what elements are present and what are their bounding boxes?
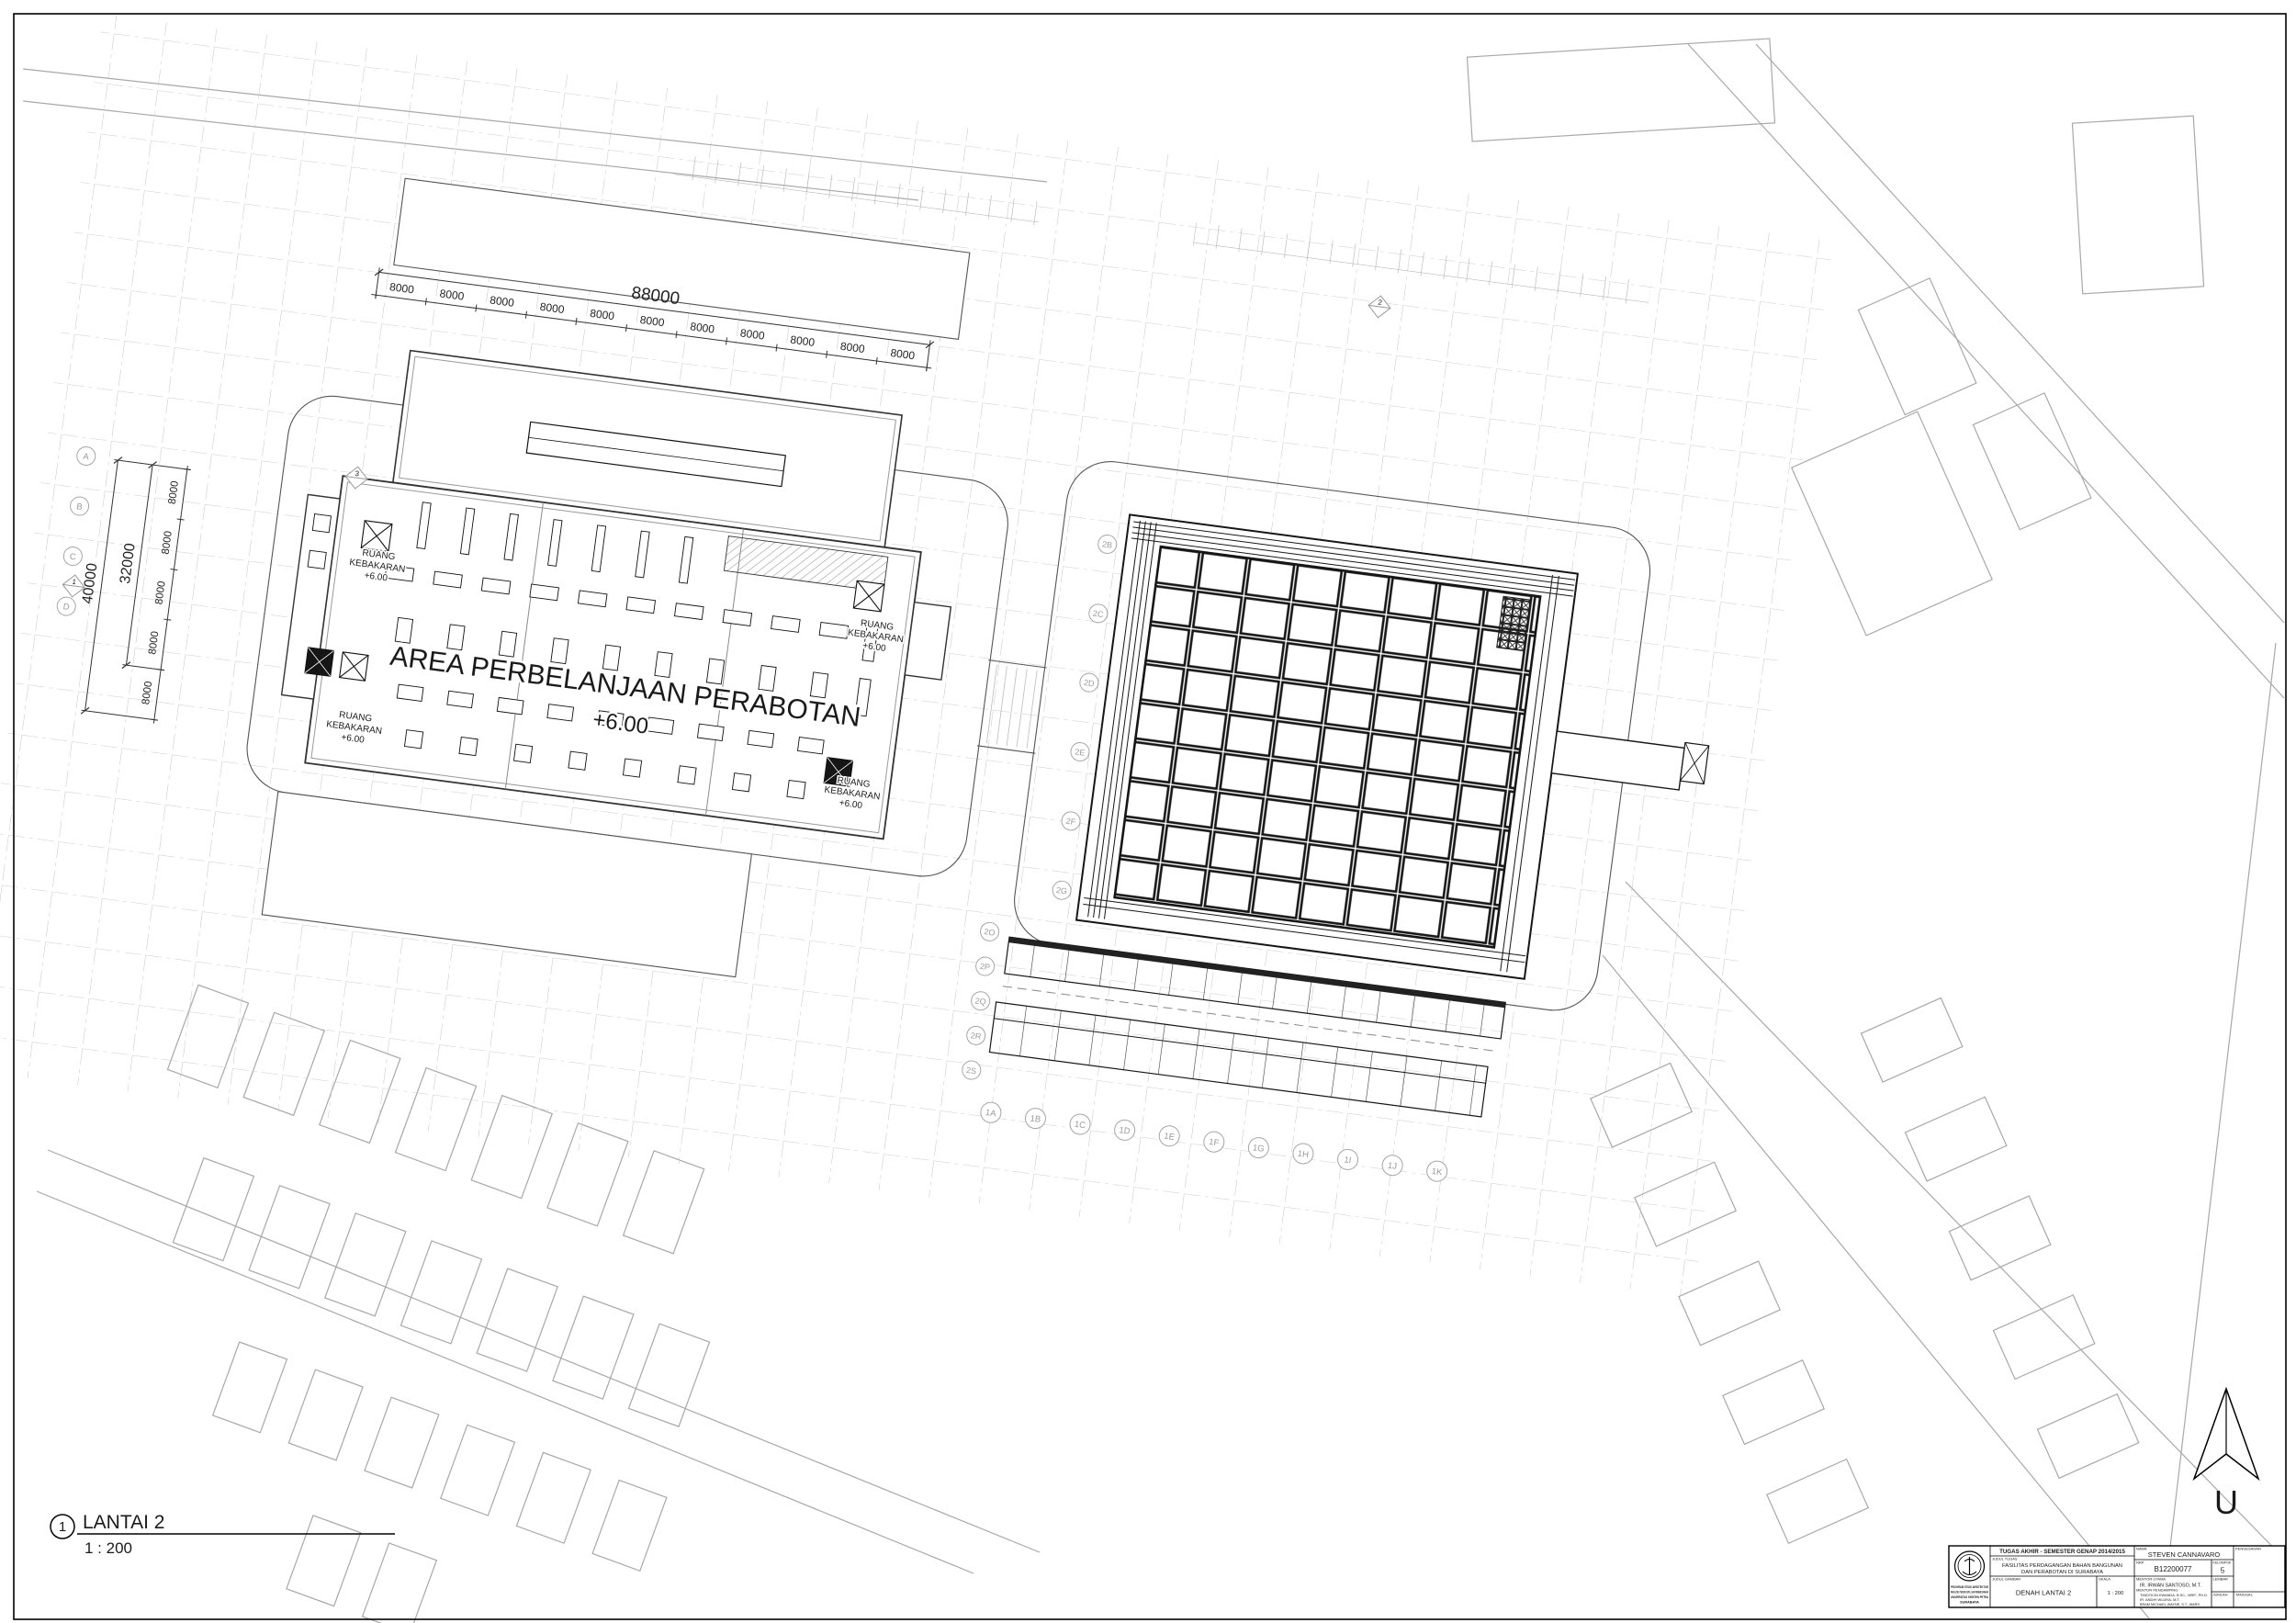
view-scale: 1 : 200 (84, 1539, 132, 1557)
plan-rotated-group: 88000 8000 8000 8000 8000 8000 8000 8000… (0, 14, 1833, 1298)
site-plan-canvas: 88000 8000 8000 8000 8000 8000 8000 8000… (0, 0, 2296, 1623)
tb-label-tanggal: TANGGAL (2235, 1593, 2254, 1597)
tb-label-mentor-pendamping: MENTOR PENDAMPING (2136, 1588, 2178, 1593)
north-arrow: U (2194, 1389, 2258, 1521)
tb-judul-tugas-2: DAN PERABOTAN DI SURABAYA (2021, 1570, 2103, 1575)
grid-bubble: 1J (1387, 1161, 1398, 1172)
grid-bubble: 2B (1102, 539, 1113, 549)
grid-bubble: 2Q (974, 996, 986, 1006)
grid-bubble: 2R (970, 1031, 982, 1041)
grid-bubble: 1D (1119, 1125, 1131, 1137)
tb-judul-gambar: DENAH LANTAI 2 (2016, 1589, 2071, 1597)
grid-bubble: 2S (966, 1065, 977, 1076)
tb-label-kelompok: KELOMPOK (2213, 1561, 2232, 1565)
grid-bubble: 2P (979, 962, 990, 972)
grid-bubble: 2E (1075, 747, 1086, 757)
grid-bubble: 1F (1208, 1137, 1220, 1148)
tb-kelompok: 5 (2221, 1567, 2225, 1575)
tb-label-jumlah: JUMLAH (2213, 1593, 2228, 1597)
tb-header: TUGAS AKHIR - SEMESTER GENAP 2014/2015 (1999, 1549, 2125, 1555)
institution-line: UNIVERSITAS KRISTEN PETRA (1951, 1595, 1988, 1599)
grid-bubble: 1G (1252, 1143, 1265, 1155)
tb-label-nama: NAMA (2136, 1547, 2147, 1551)
tb-label-judul-gambar: JUDUL GAMBAR (1992, 1577, 2020, 1582)
view-number: 1 (59, 1519, 66, 1535)
tb-label-mentor-utama: MENTOR UTAMA (2136, 1577, 2166, 1582)
drawing-sheet: 88000 8000 8000 8000 8000 8000 8000 8000… (0, 0, 2296, 1623)
institution-line: PROGRAM STUDI ARSITEKTUR (1951, 1585, 1988, 1589)
grid-bubble: 2G (1055, 885, 1067, 896)
tb-nama: STEVEN CANNAVARO (2148, 1550, 2221, 1559)
grid-bubble: 1H (1297, 1149, 1310, 1161)
tb-label-lembar: LEMBAR (2213, 1577, 2229, 1582)
institution-line: SURABAYA (1960, 1601, 1979, 1605)
grid-bubble: 1B (1030, 1113, 1041, 1124)
tb-label-judul-tugas: JUDUL TUGAS (1992, 1557, 2018, 1561)
grid-bubble: 1E (1164, 1132, 1176, 1143)
grid-bubble: 1C (1074, 1120, 1086, 1132)
tb-label-pengesahan: PENGESAHAN (2235, 1547, 2261, 1551)
institution-line: FAKULTAS TEKNIK SIPIL DAN PERENCANAAN (1951, 1591, 1988, 1595)
grid-bubble: 2F (1065, 817, 1076, 827)
grid-bubble: 1A (985, 1108, 997, 1120)
petra-logo (1955, 1551, 1985, 1581)
tb-label-skala: SKALA (2099, 1577, 2110, 1582)
grid-bubble: 2D (1083, 678, 1095, 688)
grid-bubble: 2O (984, 927, 996, 937)
tb-label-nrp: NRP (2136, 1561, 2144, 1565)
title-block: PROGRAM STUDI ARSITEKTUR FAKULTAS TEKNIK… (1949, 1546, 2285, 1607)
view-title-text: LANTAI 2 (83, 1512, 164, 1533)
roof-grid (1115, 547, 1541, 947)
grid-bubble: 1K (1431, 1167, 1444, 1178)
grid-bubble: 1I (1344, 1155, 1352, 1166)
tb-mentor-pendamping-3: BRAM MICHAEL WAYNE, S.T., MARS. (2140, 1602, 2200, 1606)
tb-nrp: B12200077 (2155, 1565, 2192, 1573)
view-title: 1 LANTAI 2 1 : 200 (51, 1512, 395, 1557)
tb-judul-tugas-1: FASILITAS PERDAGANGAN BAHAN BANGUNAN (2002, 1563, 2122, 1569)
north-label: U (2214, 1483, 2238, 1521)
tb-skala: 1 : 200 (2108, 1591, 2124, 1596)
grid-bubble: 2C (1092, 609, 1104, 619)
